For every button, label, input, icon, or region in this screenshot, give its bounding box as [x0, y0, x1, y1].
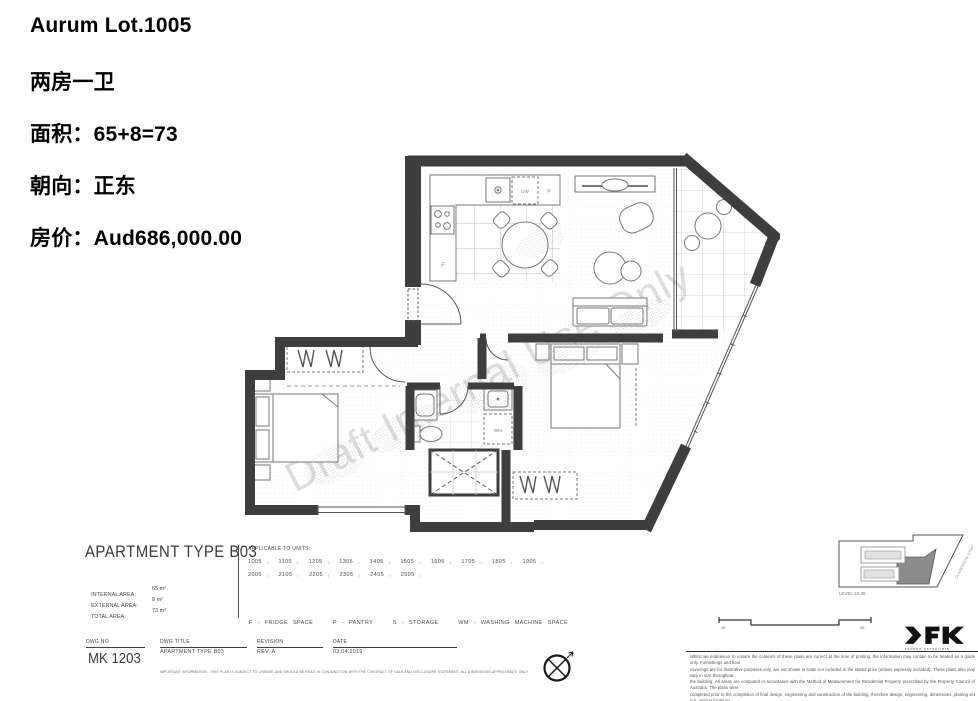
balcony-table [695, 213, 721, 239]
scale-bar: 0M 5M [715, 616, 875, 632]
lot-title: Aurum Lot.1005 [30, 14, 192, 38]
disclaimer-block: Whilst we endeavour to ensure the conten… [690, 654, 975, 701]
dwg-title-value: APARTMENT TYPE B03 [160, 649, 224, 655]
disclaimer-rule [686, 651, 978, 652]
architect-logo [903, 625, 965, 647]
legend-line: F - FRIDGE SPACE P - PANTRY S - STORAGE … [249, 620, 568, 626]
washing-machine-label: WM [494, 428, 502, 433]
fridge-label: F [441, 263, 445, 269]
logo-chevron [905, 627, 922, 644]
date-header: DATE [333, 639, 457, 648]
north-compass [540, 651, 580, 691]
dwg-no-header: DWG NO [86, 639, 145, 648]
logo-letter-f [925, 627, 939, 644]
scalebar-left-label: 0M [721, 626, 726, 630]
scalebar-right-label: 5M [860, 626, 865, 630]
key-plan: LEVEL 10-25 CLARENDON STREET [833, 531, 973, 603]
keyplan-level-label: LEVEL 10-25 [839, 591, 866, 596]
layout-line: 两房一卫 [30, 66, 115, 96]
revision-value: REV. A [257, 649, 275, 655]
orientation-line: 朝向：正东 [30, 170, 136, 200]
dishwasher-label: DW [521, 189, 529, 194]
floorplan-sheet: Aurum Lot.1005 两房一卫 面积：65+8=73 朝向：正东 房价：… [0, 0, 978, 701]
units-line-2: 2005 , 2105 , 2205 , 2305 , 2405 , 2505 … [248, 572, 421, 578]
register-fine-print: IMPORTANT INFORMATION - THIS PLAN IS SUB… [160, 670, 420, 674]
area-line: 面积：65+8=73 [30, 118, 178, 148]
applicable-units-title: APPLICABLE TO UNITS: [248, 546, 311, 552]
floor-plan-drawing: Draft Internal Use Only [240, 148, 780, 538]
price-line: 房价：Aud686,000.00 [30, 222, 242, 252]
units-line-1: 1005 , 1105 , 1205 , 1305 , 1405 , 1505 … [248, 559, 543, 565]
storage-area [430, 450, 498, 495]
north-arrow [567, 652, 573, 658]
logo-letter-k [943, 627, 964, 644]
titleblock-divider [238, 545, 239, 618]
dwg-title-header: DWG TITLE [160, 639, 247, 648]
revision-header: REVISION [257, 639, 323, 648]
total-area-row: TOTAL AREA:73 m² [85, 608, 126, 626]
date-value: 03.04.2019 [333, 649, 363, 655]
dwg-no-value: MK 1203 [88, 650, 148, 667]
